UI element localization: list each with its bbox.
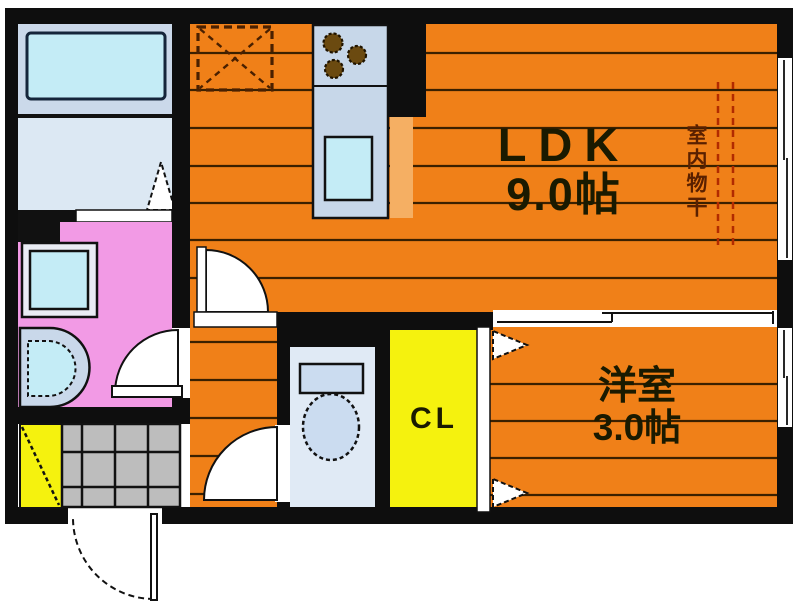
ldk-window [778, 58, 792, 260]
entrance-door-swing-fill [73, 518, 154, 599]
kitchen-sink [325, 137, 372, 200]
ldk-name: LDK [439, 120, 689, 171]
ldk-door-leaf [197, 247, 206, 312]
ldk-label: LDK 9.0帖 [439, 120, 689, 219]
entrance [20, 424, 180, 508]
bathtub [27, 33, 165, 99]
washroom-sliding-door [76, 210, 172, 222]
entrance-tiles [62, 424, 180, 507]
western-window [778, 328, 792, 427]
washroom-floor [18, 118, 172, 210]
indoor-drying-label: 室内物干 [685, 124, 706, 220]
washing-machine [30, 251, 88, 309]
toilet-tank [300, 364, 363, 393]
floor-plan: LDK 9.0帖 洋室 3.0帖 CL 室内物干 [0, 0, 800, 608]
ldk-area: 9.0帖 [439, 171, 689, 220]
entrance-door-leaf [151, 514, 157, 600]
powder-room-door-leaf [112, 386, 182, 397]
toilet-bowl [303, 394, 359, 460]
closet-label: CL [388, 403, 480, 435]
ldk-door-threshold [194, 312, 277, 327]
floorplan-canvas [0, 0, 800, 608]
bath-wash-divider [18, 114, 172, 118]
western-room-area: 3.0帖 [537, 408, 737, 448]
western-room-name: 洋室 [537, 366, 737, 408]
western-room-label: 洋室 3.0帖 [537, 366, 737, 448]
washroom-wall-segment [18, 210, 76, 222]
kitchen-counter-return [390, 115, 413, 218]
powder-room-wall-notch [18, 222, 60, 242]
